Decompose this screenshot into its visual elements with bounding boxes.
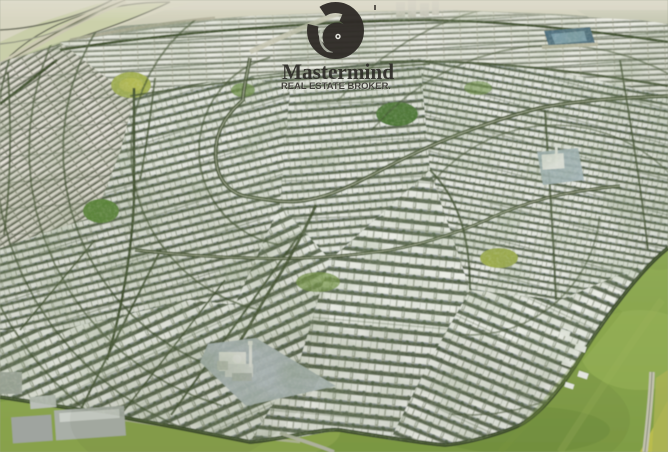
svg-text:REAL ESTATE BROKER.: REAL ESTATE BROKER. — [281, 81, 391, 92]
